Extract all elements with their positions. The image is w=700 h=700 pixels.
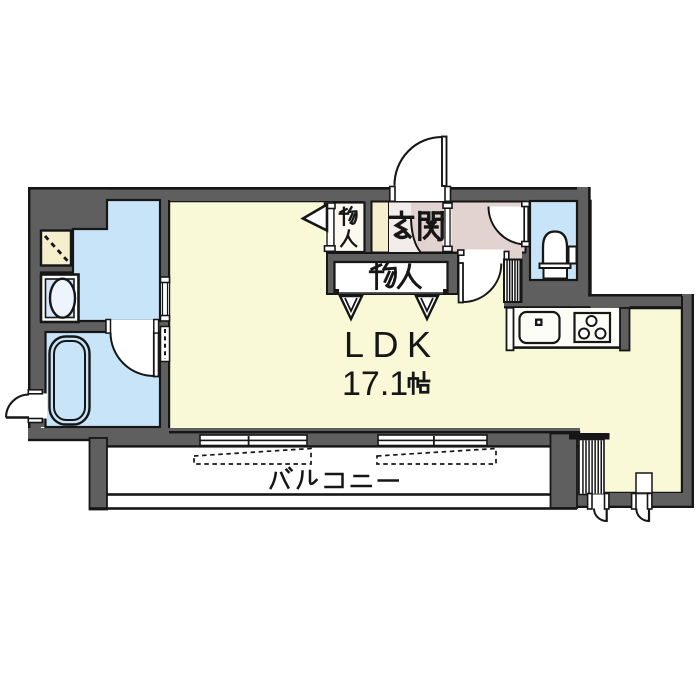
svg-text:LDK: LDK — [344, 324, 440, 365]
svg-text:17.1: 17.1 — [342, 365, 408, 403]
